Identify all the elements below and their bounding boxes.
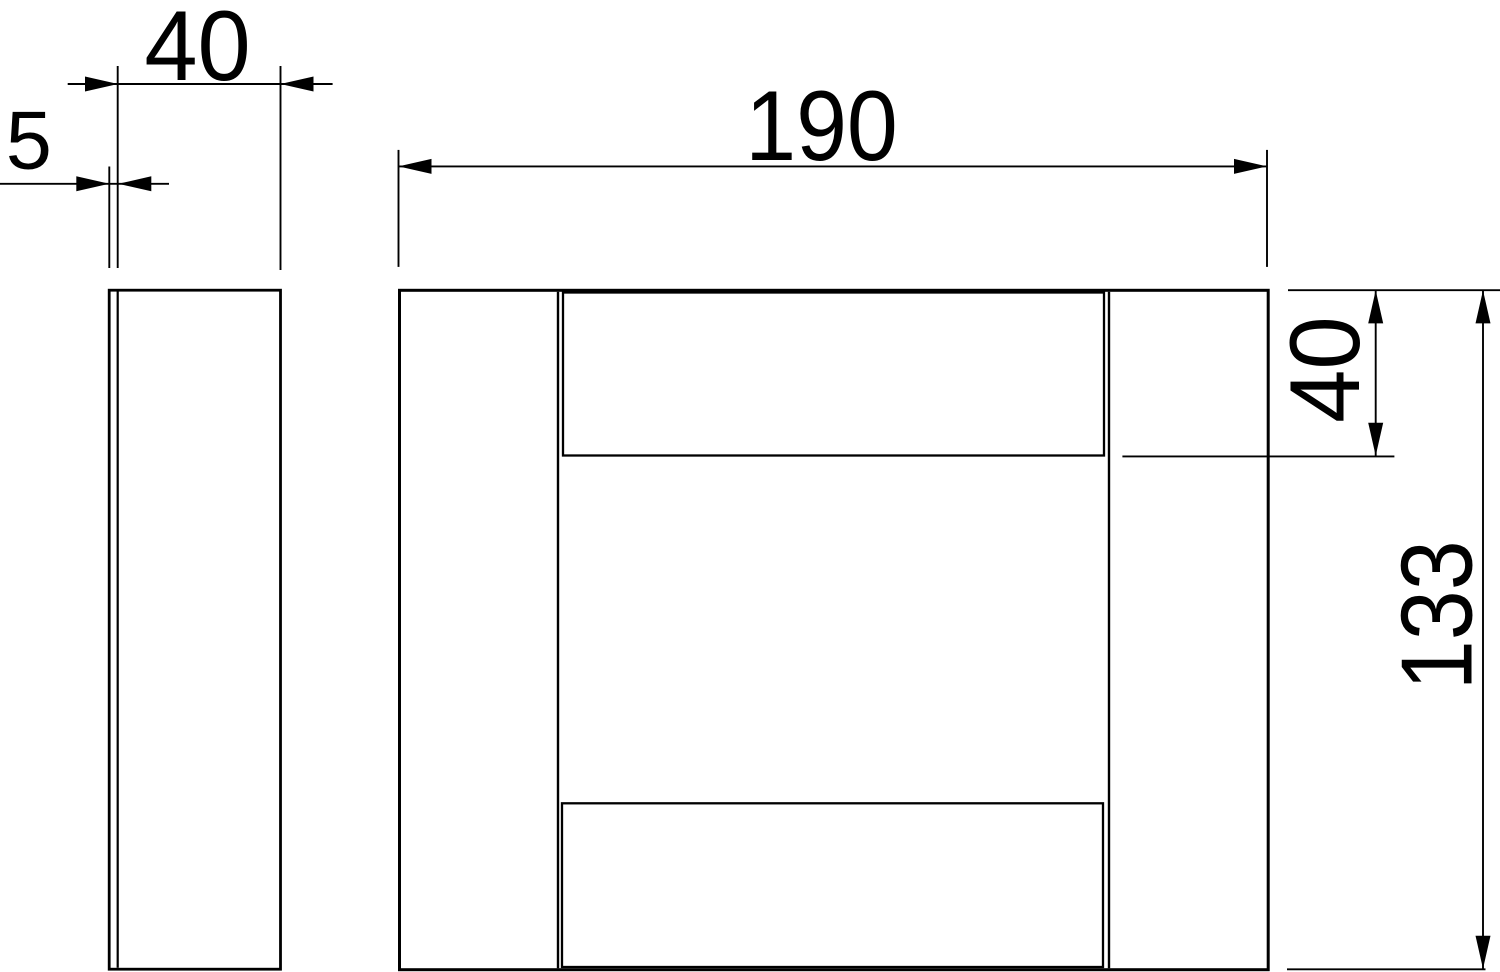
svg-text:190: 190	[745, 72, 898, 182]
svg-text:5: 5	[6, 93, 52, 186]
svg-text:133: 133	[1381, 540, 1494, 690]
svg-text:40: 40	[1269, 316, 1380, 423]
svg-text:40: 40	[144, 0, 250, 101]
